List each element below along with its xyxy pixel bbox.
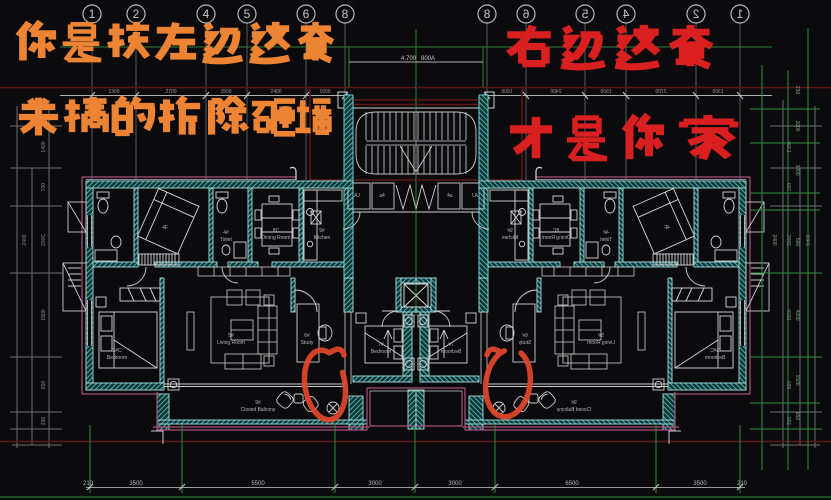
svg-text:650: 650 [794, 412, 800, 421]
svg-text:6500: 6500 [565, 481, 579, 487]
svg-text:Kitchen: Kitchen [314, 235, 331, 241]
svg-text:9#: 9# [255, 400, 261, 406]
svg-text:3500: 3500 [693, 481, 707, 487]
svg-text:4: 4 [203, 7, 210, 21]
svg-text:8C: 8C [273, 228, 280, 234]
svg-text:5500: 5500 [251, 481, 265, 487]
svg-text:3000: 3000 [448, 481, 462, 487]
svg-text:Dining Room: Dining Room [262, 235, 291, 241]
svg-text:1500: 1500 [794, 374, 800, 385]
svg-text:6#: 6# [304, 333, 310, 339]
svg-text:4.700 800A: 4.700 800A [401, 56, 435, 62]
svg-text:3500: 3500 [129, 481, 143, 487]
svg-text:6: 6 [303, 7, 310, 21]
svg-text:200C: 200C [41, 234, 47, 246]
svg-text:1500: 1500 [220, 89, 231, 95]
svg-text:1400: 1400 [41, 141, 47, 152]
svg-text:4#: 4# [223, 230, 229, 236]
svg-text:5: 5 [244, 7, 251, 21]
svg-text:230: 230 [41, 417, 47, 426]
svg-text:210: 210 [83, 481, 94, 487]
svg-text:3000: 3000 [368, 481, 382, 487]
svg-text:Toilet: Toilet [220, 237, 232, 243]
svg-text:2: 2 [133, 7, 140, 21]
svg-text:a4: a4 [379, 193, 385, 199]
svg-text:Bedroom: Bedroom [107, 355, 127, 361]
svg-text:5#: 5# [228, 333, 234, 339]
svg-text:1000: 1000 [794, 120, 800, 131]
svg-text:Bedroom: Bedroom [371, 349, 391, 355]
svg-text:1500: 1500 [41, 309, 47, 320]
svg-text:3000: 3000 [794, 164, 800, 175]
svg-text:Study: Study [301, 340, 314, 346]
svg-text:2400: 2400 [270, 89, 281, 95]
svg-text:2400: 2400 [22, 234, 28, 245]
svg-text:500: 500 [794, 238, 800, 247]
svg-text:210: 210 [737, 481, 748, 487]
svg-text:2400: 2400 [771, 234, 777, 245]
svg-text:4F: 4F [162, 225, 168, 231]
svg-text:1300: 1300 [108, 89, 119, 95]
svg-text:3#C: 3#C [112, 348, 122, 354]
svg-text:4200: 4200 [794, 309, 800, 320]
svg-text:AJ: AJ [354, 193, 360, 199]
svg-text:230: 230 [794, 86, 800, 95]
svg-text:Closed Balcony: Closed Balcony [241, 407, 276, 413]
svg-text:8: 8 [342, 7, 349, 21]
svg-text:Living Room: Living Room [217, 340, 245, 346]
svg-text:2700: 2700 [165, 89, 176, 95]
svg-text:9#: 9# [319, 228, 325, 234]
svg-text:650: 650 [41, 381, 47, 390]
svg-text:1: 1 [89, 7, 96, 21]
svg-text:7#: 7# [378, 342, 384, 348]
svg-text:700: 700 [41, 183, 47, 192]
svg-text:1600: 1600 [319, 89, 330, 95]
